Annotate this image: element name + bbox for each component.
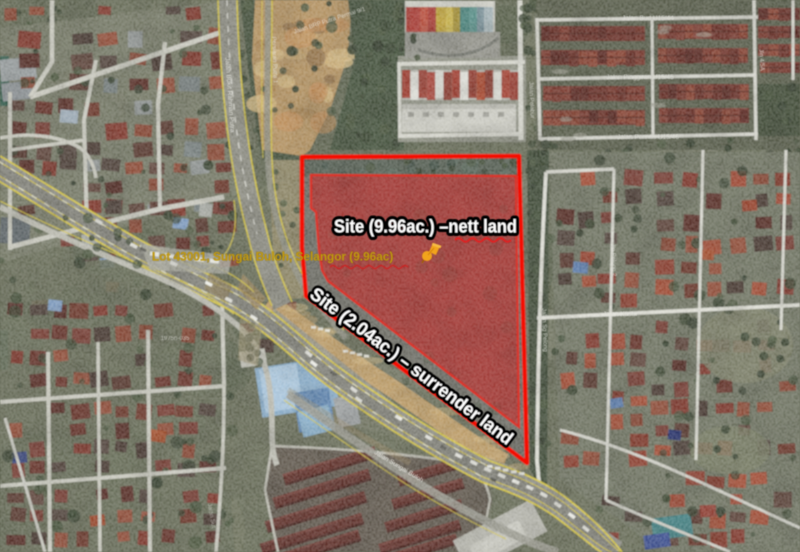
svg-text:Jalan Pinggiran U15/45: Jalan Pinggiran U15/45 — [606, 74, 674, 81]
svg-text:Lot 43001, Sungai Buloh, Selan: Lot 43001, Sungai Buloh, Selangor (9.96a… — [152, 250, 393, 264]
svg-text:Jalan Pelabur: Jalan Pelabur — [527, 82, 534, 119]
svg-text:Jalan Kusta: Jalan Kusta — [603, 311, 637, 318]
svg-text:Jln 4/5A: Jln 4/5A — [757, 49, 764, 71]
svg-text:1975n-035: 1975n-035 — [161, 336, 190, 342]
svg-text:Jalan Perintis U15/46: Jalan Perintis U15/46 — [617, 134, 679, 141]
svg-text:Site (9.96ac.) –nett land: Site (9.96ac.) –nett land — [334, 217, 517, 237]
svg-text:Jln Pelong 2: Jln Pelong 2 — [609, 243, 616, 277]
svg-text:Jalan Bud U15/44: Jalan Bud U15/44 — [622, 15, 674, 22]
